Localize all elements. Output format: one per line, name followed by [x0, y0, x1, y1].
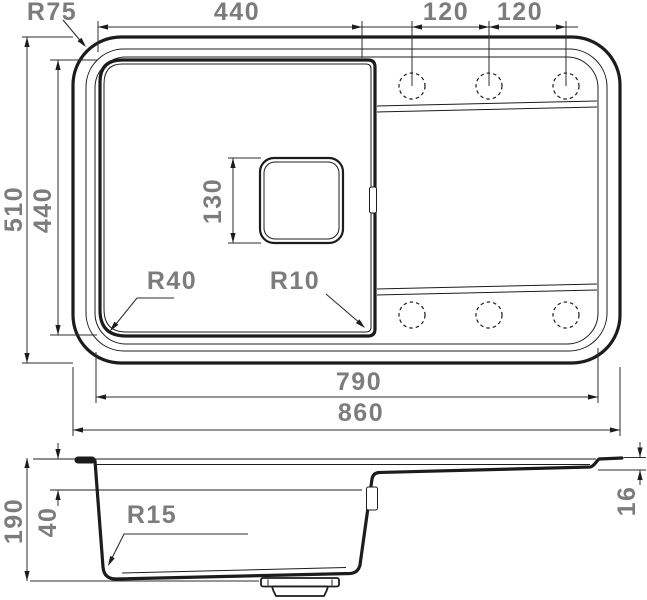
- sink-rim-line-outer: [86, 49, 607, 351]
- drain-flange-plate: [261, 578, 339, 587]
- dim-edge-thickness: 16: [598, 442, 646, 516]
- dim-label-total-height: 190: [0, 498, 28, 544]
- dim-label-r10: R10: [270, 267, 320, 295]
- sink-outer-outline: [73, 37, 620, 363]
- sink-technical-drawing: R75 440 120 120 510: [0, 0, 647, 600]
- drain-flange-body: [272, 587, 328, 597]
- top-view: R75 440 120 120 510: [0, 0, 620, 436]
- drainboard-groove-line: [377, 290, 597, 295]
- tap-hole-marker: [399, 302, 425, 328]
- bowl-inner-line: [104, 64, 371, 332]
- dim-radius-r15: R15: [108, 501, 248, 566]
- dim-label-drain-size: 130: [199, 178, 227, 224]
- dim-label-r15: R15: [127, 501, 177, 529]
- dim-label-bowl-depth: 440: [29, 187, 57, 233]
- dim-rim-depth: 40: [34, 443, 62, 537]
- dim-radius-r10: R10: [270, 267, 365, 328]
- drainboard-groove-line: [377, 107, 597, 112]
- dim-label-edge-thickness: 16: [613, 486, 641, 517]
- far-bottom-edge-line: [122, 568, 346, 574]
- dim-label-r75: R75: [27, 0, 77, 26]
- dim-label-rim-depth: 40: [34, 507, 62, 538]
- drain-hole-outline: [260, 158, 343, 243]
- dim-top-chain: 440 120 120: [98, 0, 578, 86]
- drainboard-groove-line: [377, 101, 597, 106]
- dim-label-hole-spacing-left: 120: [423, 0, 469, 26]
- dim-label-bowl-width: 440: [214, 0, 260, 26]
- dim-radius-r40: R40: [110, 267, 197, 331]
- dim-bowl-depth: 440: [29, 60, 98, 335]
- dim-label-total-depth: 510: [0, 186, 28, 232]
- dim-label-inner-width: 790: [336, 368, 382, 396]
- drawing-canvas: R75 440 120 120 510: [0, 0, 647, 600]
- dim-label-total-width: 860: [338, 399, 384, 427]
- overflow-notch: [370, 187, 377, 213]
- drainboard-groove-line: [377, 284, 597, 289]
- drain-hole-inner-line: [264, 162, 339, 239]
- bowl-outline: [100, 60, 375, 336]
- dim-label-r40: R40: [147, 267, 197, 295]
- sink-rim-line-inner: [95, 57, 598, 344]
- dim-inner-width: 790: [96, 348, 598, 403]
- overflow-hole-section: [367, 487, 378, 510]
- side-view: 190 40 R15 16: [0, 442, 646, 596]
- dim-corner-radius: R75: [27, 0, 86, 47]
- tap-hole-marker: [476, 302, 502, 328]
- dim-drain-size: 130: [199, 158, 261, 243]
- tap-hole-marker: [553, 302, 579, 328]
- dim-label-hole-spacing-right: 120: [497, 0, 543, 26]
